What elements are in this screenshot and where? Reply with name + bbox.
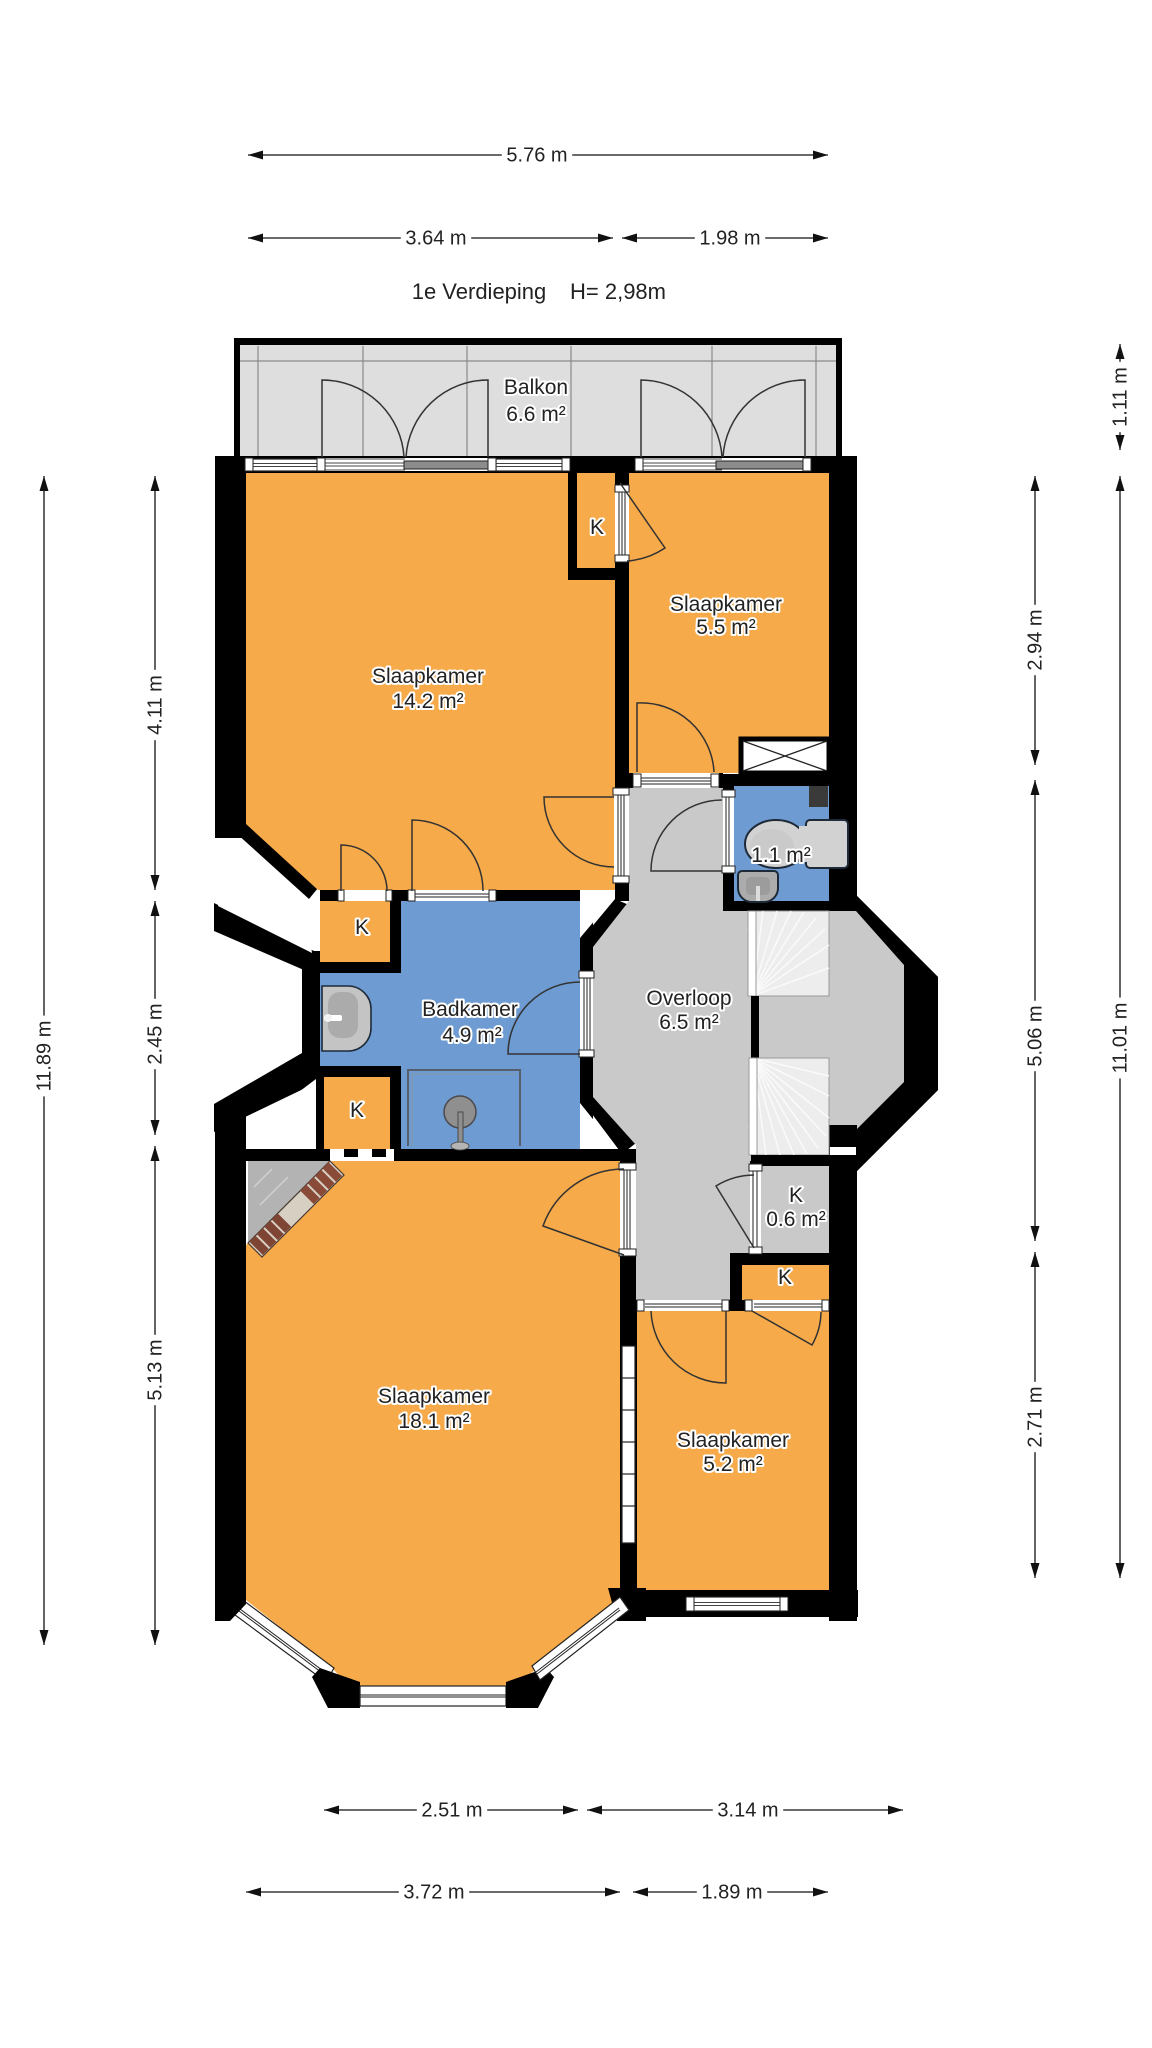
svg-text:Badkamer: Badkamer [422, 998, 518, 1021]
svg-text:5.2 m²: 5.2 m² [703, 1453, 763, 1476]
svg-text:K: K [355, 916, 369, 939]
svg-text:1.1 m²: 1.1 m² [751, 844, 811, 867]
svg-text:K: K [789, 1184, 803, 1207]
svg-text:1e Verdieping: 1e Verdieping [412, 279, 547, 304]
svg-text:5.5 m²: 5.5 m² [696, 616, 756, 639]
svg-text:4.9 m²: 4.9 m² [442, 1024, 502, 1047]
svg-text:5.76 m: 5.76 m [506, 145, 567, 167]
svg-text:K: K [590, 516, 604, 539]
svg-text:3.64 m: 3.64 m [405, 228, 466, 250]
svg-text:5.06 m: 5.06 m [1025, 1005, 1047, 1066]
svg-text:2.94 m: 2.94 m [1025, 609, 1047, 670]
svg-text:0.6 m²: 0.6 m² [766, 1208, 826, 1231]
svg-text:H= 2,98m: H= 2,98m [570, 279, 666, 304]
svg-text:14.2 m²: 14.2 m² [392, 690, 463, 713]
svg-text:6.6 m²: 6.6 m² [506, 403, 566, 426]
svg-text:Balkon: Balkon [504, 376, 568, 399]
svg-text:Slaapkamer: Slaapkamer [670, 593, 782, 616]
svg-text:2.51 m: 2.51 m [421, 1800, 482, 1822]
svg-text:11.01 m: 11.01 m [1110, 1003, 1132, 1074]
svg-text:Overloop: Overloop [646, 987, 731, 1010]
svg-text:2.45 m: 2.45 m [145, 1003, 167, 1064]
svg-text:Slaapkamer: Slaapkamer [372, 665, 484, 688]
svg-text:11.89 m: 11.89 m [34, 1021, 56, 1092]
svg-text:4.11 m: 4.11 m [145, 675, 167, 735]
svg-text:Slaapkamer: Slaapkamer [677, 1429, 789, 1452]
svg-text:K: K [778, 1266, 792, 1289]
svg-text:K: K [350, 1099, 364, 1122]
svg-text:3.14 m: 3.14 m [717, 1800, 778, 1822]
svg-text:18.1 m²: 18.1 m² [398, 1410, 469, 1433]
svg-text:2.71 m: 2.71 m [1025, 1386, 1047, 1447]
svg-text:6.5 m²: 6.5 m² [659, 1011, 719, 1034]
svg-text:5.13 m: 5.13 m [145, 1339, 167, 1400]
svg-text:1.89 m: 1.89 m [701, 1882, 762, 1904]
svg-text:1.98 m: 1.98 m [699, 228, 760, 250]
svg-text:Slaapkamer: Slaapkamer [378, 1385, 490, 1408]
svg-text:1.11 m: 1.11 m [1110, 367, 1132, 427]
svg-text:3.72 m: 3.72 m [403, 1882, 464, 1904]
